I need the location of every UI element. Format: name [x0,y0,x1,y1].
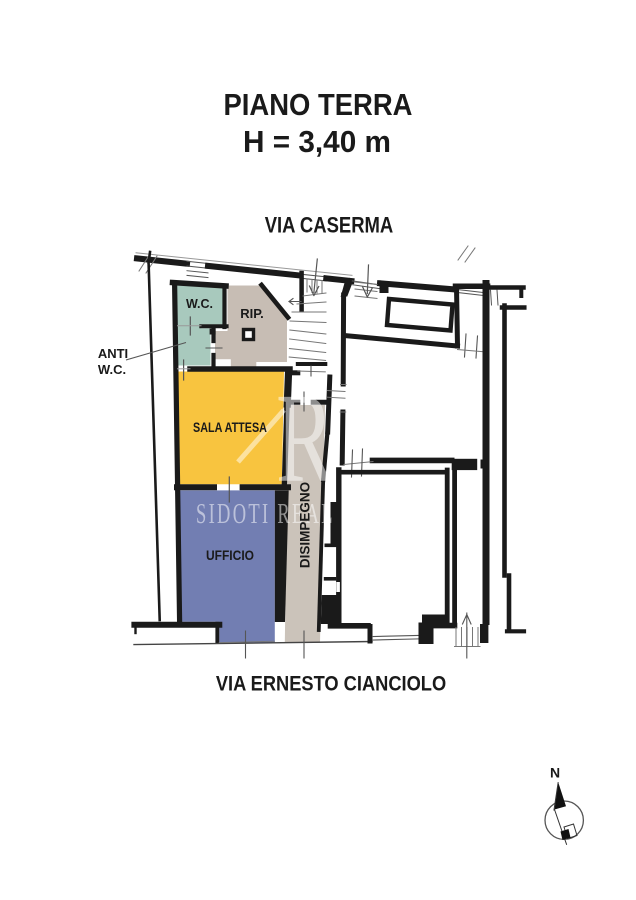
svg-text:VIA CASERMA: VIA CASERMA [265,214,394,238]
svg-text:SALA ATTESA: SALA ATTESA [193,420,267,435]
svg-text:ANTI: ANTI [98,346,128,361]
svg-text:N: N [550,765,560,781]
svg-text:W.C.: W.C. [98,362,126,377]
svg-text:UFFICIO: UFFICIO [206,547,254,563]
svg-text:PIANO TERRA: PIANO TERRA [224,89,413,123]
svg-text:VIA ERNESTO CIANCIOLO: VIA ERNESTO CIANCIOLO [216,672,446,696]
svg-text:H = 3,40 m: H = 3,40 m [243,124,391,159]
svg-text:W.C.: W.C. [186,297,213,311]
svg-text:RIP.: RIP. [240,306,264,321]
svg-text:DISIMPEGNO: DISIMPEGNO [298,482,313,568]
